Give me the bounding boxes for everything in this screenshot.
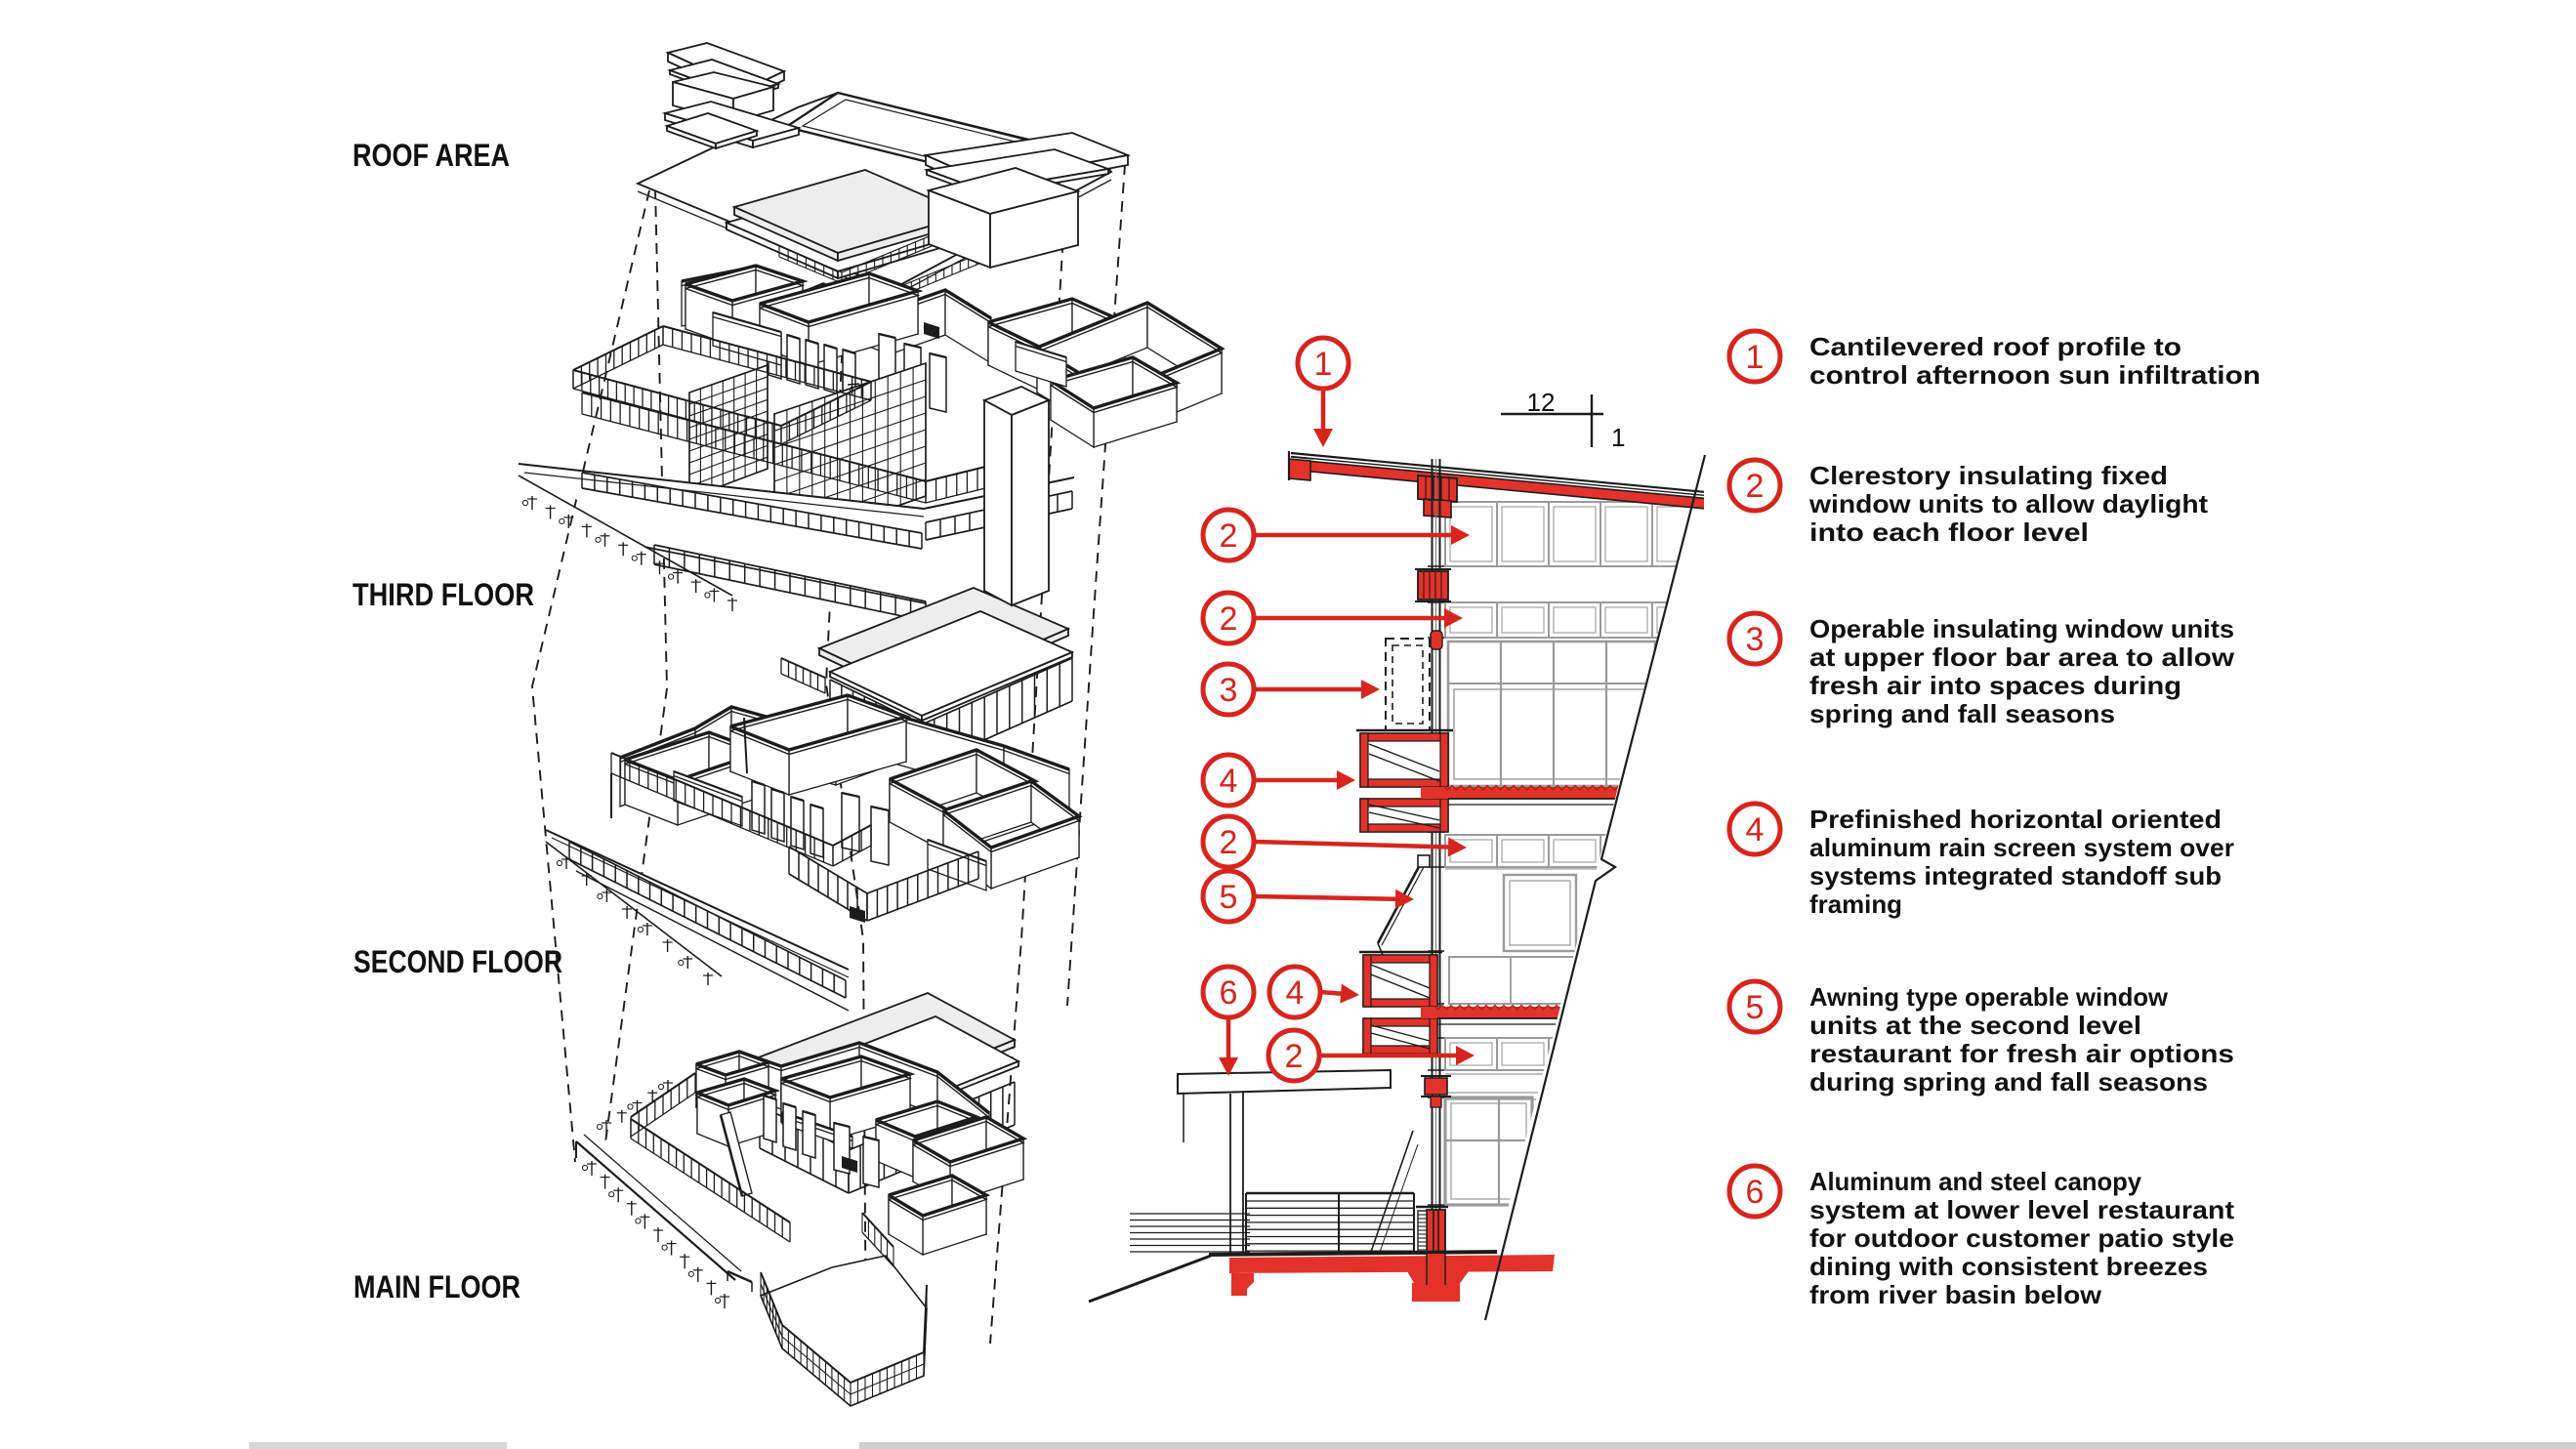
svg-text:control afternoon sun infiltra: control afternoon sun infiltration [1809, 360, 2261, 390]
svg-text:1: 1 [1611, 423, 1625, 452]
svg-text:SECOND FLOOR: SECOND FLOOR [353, 944, 562, 979]
svg-text:Operable insulating window uni: Operable insulating window units [1809, 614, 2234, 643]
svg-text:3: 3 [1220, 672, 1238, 709]
svg-text:THIRD FLOOR: THIRD FLOOR [353, 577, 534, 612]
svg-text:2: 2 [1746, 468, 1765, 505]
svg-text:4: 4 [1746, 811, 1765, 849]
svg-text:fresh air into spaces during: fresh air into spaces during [1809, 671, 2181, 700]
svg-text:5: 5 [1220, 879, 1238, 916]
svg-text:systems integrated standoff su: systems integrated standoff sub [1809, 861, 2222, 890]
svg-text:12: 12 [1527, 388, 1556, 417]
svg-text:window units to allow daylight: window units to allow daylight [1808, 489, 2208, 518]
svg-text:dining with consistent breezes: dining with consistent breezes [1809, 1252, 2208, 1281]
svg-text:6: 6 [1220, 974, 1238, 1012]
svg-text:ROOF AREA: ROOF AREA [353, 138, 510, 173]
svg-text:Aluminum and steel canopy: Aluminum and steel canopy [1809, 1167, 2142, 1196]
svg-text:2: 2 [1285, 1038, 1304, 1075]
svg-text:2: 2 [1220, 517, 1238, 555]
svg-text:2: 2 [1220, 600, 1238, 638]
svg-text:spring and fall seasons: spring and fall seasons [1809, 699, 2115, 728]
svg-text:1: 1 [1746, 339, 1765, 376]
svg-text:MAIN FLOOR: MAIN FLOOR [353, 1269, 520, 1304]
svg-text:4: 4 [1286, 974, 1305, 1012]
svg-text:2: 2 [1220, 824, 1238, 861]
svg-text:5: 5 [1746, 989, 1765, 1026]
svg-text:1: 1 [1314, 346, 1333, 383]
svg-text:3: 3 [1746, 621, 1765, 658]
svg-text:4: 4 [1220, 763, 1238, 800]
svg-text:during spring and fall seasons: during spring and fall seasons [1809, 1067, 2208, 1097]
svg-text:into each floor level: into each floor level [1809, 517, 2089, 547]
svg-text:units at the second level: units at the second level [1809, 1011, 2141, 1040]
svg-text:Awning type operable window: Awning type operable window [1809, 982, 2169, 1012]
svg-text:aluminum rain screen system ov: aluminum rain screen system over [1809, 833, 2234, 862]
svg-text:at upper floor bar area to all: at upper floor bar area to allow [1809, 642, 2235, 672]
svg-text:system at lower level restaura: system at lower level restaurant [1809, 1195, 2234, 1224]
svg-text:6: 6 [1746, 1174, 1765, 1211]
svg-text:restaurant for fresh air optio: restaurant for fresh air options [1809, 1039, 2234, 1068]
svg-text:Clerestory insulating fixed: Clerestory insulating fixed [1809, 461, 2168, 490]
svg-text:Cantilevered roof profile to: Cantilevered roof profile to [1809, 332, 2181, 361]
svg-text:framing: framing [1809, 890, 1902, 919]
svg-text:for outdoor customer patio sty: for outdoor customer patio style [1809, 1223, 2234, 1253]
svg-text:Prefinished horizontal oriente: Prefinished horizontal oriented [1809, 805, 2222, 834]
svg-text:from river basin below: from river basin below [1809, 1280, 2102, 1309]
